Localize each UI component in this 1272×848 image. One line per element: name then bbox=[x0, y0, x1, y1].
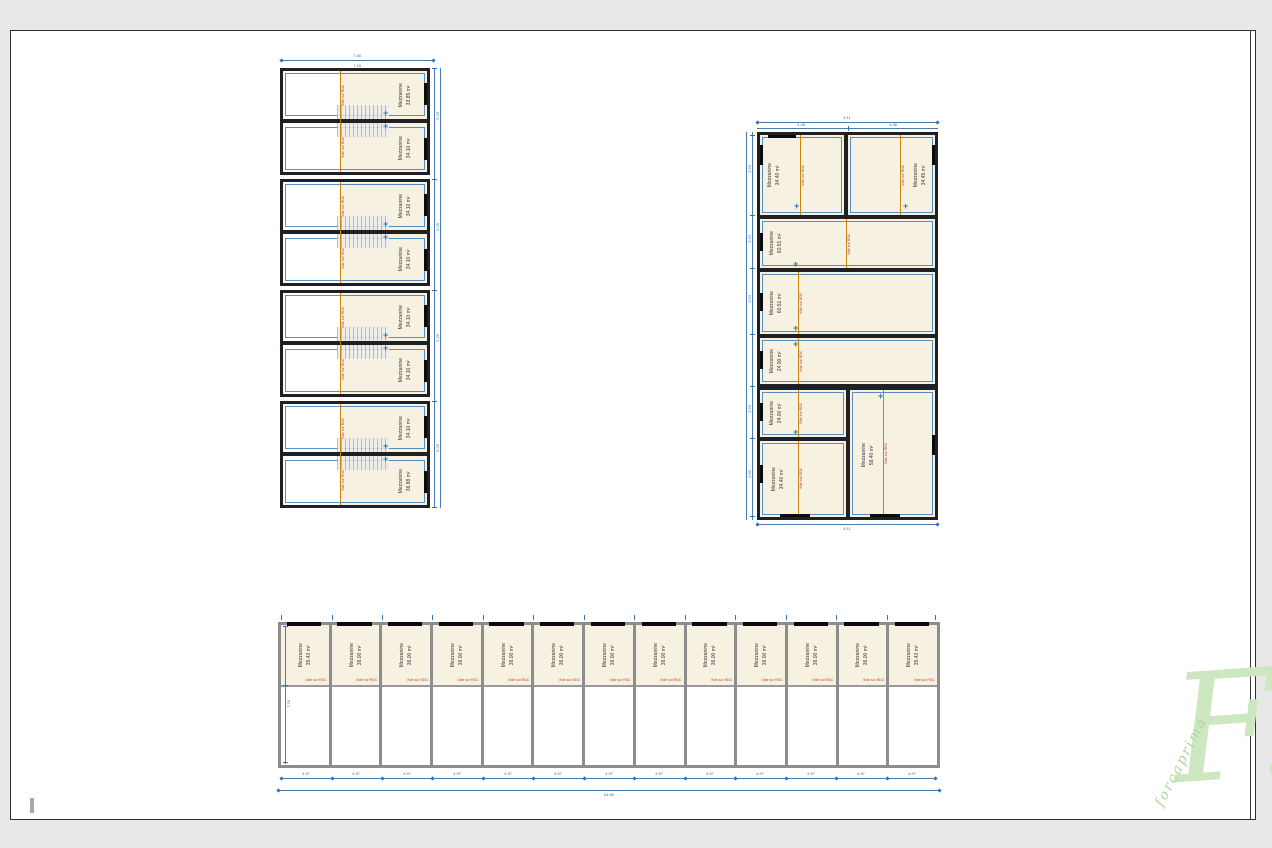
door-bar bbox=[489, 622, 523, 626]
level-marker-icon: + bbox=[793, 325, 798, 331]
dim-tick bbox=[735, 615, 736, 620]
dim-tick bbox=[432, 401, 437, 402]
dim-tick bbox=[685, 615, 686, 620]
room-area: 34.10 m² bbox=[405, 416, 413, 440]
room-label: Mezzanine34.10 m² bbox=[389, 406, 421, 450]
room-label: Mezzanine36.00 m² bbox=[788, 625, 836, 685]
dimension-label: 4.97 bbox=[857, 771, 865, 776]
window-bar bbox=[760, 145, 763, 165]
window-bar bbox=[424, 416, 427, 438]
room-area: 24.00 m² bbox=[776, 349, 784, 373]
dimension-label: 4.97 bbox=[453, 771, 461, 776]
dim-tick bbox=[848, 126, 849, 131]
dimension-line bbox=[281, 60, 434, 61]
void-annotation: Vide sur RDC bbox=[609, 678, 630, 682]
room-name: Mezzanine bbox=[768, 291, 776, 315]
window-bar bbox=[760, 403, 763, 421]
room-label: Mezzanine36.00 m² bbox=[382, 625, 430, 685]
room-label: Mezzanine35.43 m² bbox=[281, 625, 329, 685]
room-area: 36.00 m² bbox=[710, 643, 718, 667]
dim-tick bbox=[750, 268, 755, 269]
dimension-label: 5.29 bbox=[435, 223, 440, 231]
void-annotation: Vide sur RDC bbox=[799, 280, 803, 326]
dim-tick bbox=[836, 615, 837, 620]
room-name: Mezzanine bbox=[804, 643, 812, 667]
dim-tick bbox=[432, 615, 433, 620]
door-bar bbox=[780, 514, 810, 517]
dim-tick bbox=[283, 762, 288, 763]
storage-unit: Mezzanine36.00 m²Vide sur RDC bbox=[382, 625, 433, 765]
wall bbox=[283, 230, 427, 234]
room-name: Mezzanine bbox=[905, 643, 913, 667]
void-annotation: Vide sur RDC bbox=[341, 129, 345, 165]
void-annotation: Vide sur RDC bbox=[711, 678, 732, 682]
room-inner-frame bbox=[762, 340, 933, 382]
building-shell: Vide sur RDC Mezzanine34.40 m² + Vide su… bbox=[757, 132, 938, 520]
window-bar bbox=[760, 293, 763, 311]
room-area: 36.00 m² bbox=[406, 643, 414, 667]
room-name: Mezzanine bbox=[297, 643, 305, 667]
room-label: Mezzanine34.40 m² bbox=[764, 143, 784, 207]
room-label: Mezzanine36.00 m² bbox=[585, 625, 633, 685]
void-annotation: Vide sur RDC bbox=[799, 344, 803, 378]
room-area: 36.88 m² bbox=[405, 469, 413, 493]
dimension-label: 7.58 bbox=[353, 53, 361, 58]
room-name: Mezzanine bbox=[397, 194, 405, 218]
room-inner-frame bbox=[762, 274, 933, 332]
wall bbox=[283, 341, 427, 345]
room-area: 36.00 m² bbox=[660, 643, 668, 667]
dimension-label: 4.97 bbox=[403, 771, 411, 776]
storage-unit: Mezzanine36.00 m²Vide sur RDC bbox=[737, 625, 788, 765]
mezzanine-area: Mezzanine36.00 m²Vide sur RDC bbox=[534, 625, 582, 687]
dim-tick bbox=[750, 215, 755, 216]
level-marker-icon: + bbox=[793, 429, 798, 435]
room-area: 36.00 m² bbox=[558, 643, 566, 667]
void-annotation: Vide sur RDC bbox=[863, 678, 884, 682]
room-name: Mezzanine bbox=[770, 467, 778, 491]
room-name: Mezzanine bbox=[860, 443, 868, 467]
dim-tick bbox=[533, 615, 534, 620]
window-bar bbox=[424, 249, 427, 271]
dimension-label: 4.48 bbox=[797, 122, 805, 127]
void-annotation: Vide sur RDC bbox=[901, 147, 905, 203]
level-marker-icon: + bbox=[793, 261, 798, 267]
door-bar bbox=[768, 135, 796, 138]
mezzanine-area: Mezzanine36.00 m²Vide sur RDC bbox=[687, 625, 735, 687]
drawing-canvas: 7.58 7.18 Vide sur RDC Vide sur RDC Mezz… bbox=[0, 0, 1272, 848]
door-bar bbox=[337, 622, 371, 626]
dimension-label: 4.97 bbox=[605, 771, 613, 776]
room-area: 36.00 m² bbox=[609, 643, 617, 667]
window-bar bbox=[424, 83, 427, 105]
void-annotation: Vide sur RDC bbox=[341, 351, 345, 387]
void-annotation: Vide sur RDC bbox=[799, 396, 803, 431]
dimension-label: 3.93 bbox=[747, 470, 752, 478]
room-label: Mezzanine33.85 m² bbox=[389, 73, 421, 117]
dim-tick bbox=[432, 290, 437, 291]
dimension-label: 3.93 bbox=[747, 405, 752, 413]
room-area: 34.45 m² bbox=[920, 163, 928, 187]
storage-unit: Mezzanine36.00 m²Vide sur RDC bbox=[788, 625, 839, 765]
window-bar bbox=[424, 194, 427, 216]
window-bar bbox=[424, 471, 427, 493]
dimension-line bbox=[434, 68, 435, 508]
window-bar bbox=[760, 233, 763, 251]
level-marker-icon: + bbox=[383, 345, 388, 351]
storage-unit: Mezzanine36.00 m²Vide sur RDC bbox=[534, 625, 585, 765]
wall bbox=[283, 452, 427, 456]
dimension-label: 3.93 bbox=[747, 295, 752, 303]
room-label: Mezzanine60.51 m² bbox=[766, 277, 786, 329]
dim-tick bbox=[283, 626, 288, 627]
room-area: 36.00 m² bbox=[457, 643, 465, 667]
door-bar bbox=[844, 622, 878, 626]
room-label: Mezzanine34.10 m² bbox=[389, 348, 421, 392]
room-name: Mezzanine bbox=[397, 305, 405, 329]
window-bar bbox=[760, 351, 763, 369]
mezzanine-area: Mezzanine36.00 m²Vide sur RDC bbox=[585, 625, 633, 687]
room-name: Mezzanine bbox=[397, 136, 405, 160]
room-name: Mezzanine bbox=[500, 643, 508, 667]
level-marker-icon: + bbox=[794, 203, 799, 209]
room-area: 33.85 m² bbox=[405, 83, 413, 107]
mezzanine-area: Mezzanine36.00 m²Vide sur RDC bbox=[737, 625, 785, 687]
watermark-letter: F. bbox=[1167, 648, 1272, 807]
dimension-label: 4.97 bbox=[756, 771, 764, 776]
level-marker-icon: + bbox=[383, 332, 388, 338]
level-marker-icon: + bbox=[383, 110, 388, 116]
floor-plan-bottom: Mezzanine35.43 m²Vide sur RDC Mezzanine3… bbox=[278, 622, 940, 768]
room-label: Mezzanine34.10 m² bbox=[389, 184, 421, 228]
void-annotation: Vide sur RDC bbox=[801, 147, 805, 203]
storage-unit: Mezzanine36.00 m²Vide sur RDC bbox=[687, 625, 738, 765]
room-area: 24.00 m² bbox=[776, 401, 784, 425]
dimension-label: 5.29 bbox=[435, 334, 440, 342]
void-annotation: Vide sur RDC bbox=[457, 678, 478, 682]
room-name: Mezzanine bbox=[753, 643, 761, 667]
room-area: 35.43 m² bbox=[913, 643, 921, 667]
building-module: Vide sur RDC Vide sur RDC Mezzanine34.10… bbox=[280, 401, 430, 508]
dimension-label: 3.93 bbox=[747, 165, 752, 173]
dim-tick bbox=[432, 68, 437, 69]
void-annotation: Vide sur RDC bbox=[812, 678, 833, 682]
void-annotation: Vide sur RDC bbox=[799, 449, 803, 507]
window-bar bbox=[932, 435, 935, 455]
room-label: Mezzanine24.00 m² bbox=[766, 341, 786, 381]
room-label: Mezzanine36.00 m² bbox=[433, 625, 481, 685]
room-name: Mezzanine bbox=[348, 643, 356, 667]
dimension-label: 9.11 bbox=[843, 526, 851, 531]
room-area: 35.43 m² bbox=[305, 643, 313, 667]
room-area: 36.00 m² bbox=[862, 643, 870, 667]
dimension-line bbox=[757, 122, 938, 123]
void-annotation: Vide sur RDC bbox=[559, 678, 580, 682]
room-name: Mezzanine bbox=[768, 349, 776, 373]
room-label: Mezzanine36.00 m² bbox=[839, 625, 887, 685]
dim-tick bbox=[432, 507, 437, 508]
room-label: Mezzanine35.43 m² bbox=[889, 625, 937, 685]
room-area: 34.10 m² bbox=[405, 136, 413, 160]
void-annotation: Vide sur RDC bbox=[305, 678, 326, 682]
room-label: Mezzanine34.10 m² bbox=[389, 237, 421, 281]
level-marker-icon: + bbox=[383, 221, 388, 227]
dimension-label: 5.29 bbox=[435, 444, 440, 452]
room-label: Mezzanine34.10 m² bbox=[389, 295, 421, 339]
window-bar bbox=[760, 465, 763, 483]
level-marker-icon: + bbox=[903, 203, 908, 209]
wall bbox=[283, 119, 427, 123]
door-bar bbox=[692, 622, 726, 626]
window-bar bbox=[424, 138, 427, 160]
dimension-label: 4.48 bbox=[889, 122, 897, 127]
dimension-label: 4.97 bbox=[706, 771, 714, 776]
room-name: Mezzanine bbox=[397, 247, 405, 271]
level-marker-icon: + bbox=[383, 443, 388, 449]
room-label: Mezzanine36.00 m² bbox=[484, 625, 532, 685]
dimension-label: 4.97 bbox=[655, 771, 663, 776]
door-bar bbox=[895, 622, 929, 626]
room-label: Mezzanine34.40 m² bbox=[768, 447, 788, 511]
door-bar bbox=[870, 514, 900, 517]
storage-unit: Mezzanine36.00 m²Vide sur RDC bbox=[332, 625, 383, 765]
dimension-line bbox=[278, 790, 940, 791]
window-bar bbox=[424, 305, 427, 327]
dim-tick bbox=[432, 179, 437, 180]
door-bar bbox=[642, 622, 676, 626]
room-area: 34.10 m² bbox=[405, 305, 413, 329]
dim-tick bbox=[584, 615, 585, 620]
room-label: Mezzanine60.51 m² bbox=[766, 223, 786, 264]
dimension-line bbox=[440, 68, 441, 508]
room-area: 34.40 m² bbox=[774, 163, 782, 187]
void-annotation: Vide sur RDC bbox=[508, 678, 529, 682]
door-bar bbox=[743, 622, 777, 626]
dim-tick bbox=[281, 615, 282, 620]
door-bar bbox=[388, 622, 422, 626]
dim-tick bbox=[382, 615, 383, 620]
void-annotation: Vide sur RDC bbox=[762, 678, 783, 682]
building-module: Vide sur RDC Vide sur RDC Mezzanine34.10… bbox=[280, 179, 430, 286]
room-label: Mezzanine36.00 m² bbox=[332, 625, 380, 685]
room-label: Mezzanine36.00 m² bbox=[737, 625, 785, 685]
void-annotation: Vide sur RDC bbox=[341, 410, 345, 446]
mezzanine-area: Mezzanine36.00 m²Vide sur RDC bbox=[433, 625, 481, 687]
door-bar bbox=[591, 622, 625, 626]
void-annotation: Vide sur RDC bbox=[884, 403, 888, 503]
dimension-label: 5.29 bbox=[435, 112, 440, 120]
dim-tick bbox=[786, 615, 787, 620]
dimension-label: 4.97 bbox=[807, 771, 815, 776]
room-area: 36.00 m² bbox=[508, 643, 516, 667]
dimension-label: 7.20 bbox=[286, 700, 291, 708]
void-annotation: Vide sur RDC bbox=[660, 678, 681, 682]
void-annotation: Vide sur RDC bbox=[341, 77, 345, 113]
dimension-label: 4.97 bbox=[302, 771, 310, 776]
door-bar bbox=[287, 622, 321, 626]
room-area: 60.51 m² bbox=[776, 231, 784, 255]
room-name: Mezzanine bbox=[449, 643, 457, 667]
mezzanine-area: Mezzanine36.00 m²Vide sur RDC bbox=[788, 625, 836, 687]
level-marker-icon: + bbox=[383, 123, 388, 129]
room-name: Mezzanine bbox=[768, 231, 776, 255]
dimension-label: 4.97 bbox=[352, 771, 360, 776]
storage-unit: Mezzanine36.00 m²Vide sur RDC bbox=[433, 625, 484, 765]
void-annotation: Vide sur RDC bbox=[407, 678, 428, 682]
level-marker-icon: + bbox=[383, 234, 388, 240]
room-name: Mezzanine bbox=[768, 401, 776, 425]
dimension-label: 4.97 bbox=[908, 771, 916, 776]
room-area: 36.00 m² bbox=[812, 643, 820, 667]
dim-tick bbox=[634, 615, 635, 620]
room-name: Mezzanine bbox=[766, 163, 774, 187]
dim-tick bbox=[750, 135, 755, 136]
dim-tick bbox=[750, 334, 755, 335]
room-area: 34.10 m² bbox=[405, 194, 413, 218]
void-annotation: Vide sur RDC bbox=[341, 240, 345, 276]
room-name: Mezzanine bbox=[397, 358, 405, 382]
dimension-label: 9.11 bbox=[843, 115, 851, 120]
room-name: Mezzanine bbox=[652, 643, 660, 667]
dimension-line bbox=[752, 132, 753, 520]
dim-tick bbox=[750, 386, 755, 387]
dimension-line bbox=[746, 132, 747, 520]
level-marker-icon: + bbox=[793, 341, 798, 347]
void-annotation: Vide sur RDC bbox=[341, 462, 345, 498]
storage-unit: Mezzanine36.00 m²Vide sur RDC bbox=[484, 625, 535, 765]
mezzanine-area: Mezzanine36.00 m²Vide sur RDC bbox=[636, 625, 684, 687]
door-bar bbox=[540, 622, 574, 626]
void-annotation: Vide sur RDC bbox=[356, 678, 377, 682]
door-bar bbox=[439, 622, 473, 626]
room-area: 34.10 m² bbox=[405, 358, 413, 382]
room-label: Mezzanine36.00 m² bbox=[636, 625, 684, 685]
dimension-line bbox=[757, 524, 938, 525]
dimension-line bbox=[285, 626, 286, 764]
room-label: Mezzanine36.88 m² bbox=[389, 459, 421, 503]
dimension-label: 4.97 bbox=[554, 771, 562, 776]
level-marker-icon: + bbox=[383, 456, 388, 462]
room-name: Mezzanine bbox=[397, 83, 405, 107]
room-name: Mezzanine bbox=[912, 163, 920, 187]
void-annotation: Vide sur RDC bbox=[914, 678, 935, 682]
dimension-label: 4.97 bbox=[504, 771, 512, 776]
dim-tick bbox=[483, 615, 484, 620]
void-annotation: Vide sur RDC bbox=[341, 299, 345, 335]
dim-tick bbox=[332, 615, 333, 620]
room-name: Mezzanine bbox=[397, 416, 405, 440]
dim-tick bbox=[750, 516, 755, 517]
room-label: Mezzanine36.00 m² bbox=[534, 625, 582, 685]
storage-unit: Mezzanine36.00 m²Vide sur RDC bbox=[839, 625, 890, 765]
room-area: 36.00 m² bbox=[356, 643, 364, 667]
mezzanine-area: Mezzanine36.00 m²Vide sur RDC bbox=[484, 625, 532, 687]
room-area: 58.40 m² bbox=[868, 443, 876, 467]
storage-unit: Mezzanine36.00 m²Vide sur RDC bbox=[585, 625, 636, 765]
storage-unit: Mezzanine35.43 m²Vide sur RDC bbox=[281, 625, 332, 765]
window-bar bbox=[932, 145, 935, 165]
mezzanine-area: Mezzanine36.00 m²Vide sur RDC bbox=[382, 625, 430, 687]
room-label: Mezzanine24.00 m² bbox=[766, 393, 786, 434]
level-marker-icon: + bbox=[878, 393, 883, 399]
room-name: Mezzanine bbox=[397, 469, 405, 493]
mezzanine-area: Mezzanine36.00 m²Vide sur RDC bbox=[839, 625, 887, 687]
dim-tick bbox=[283, 685, 288, 686]
mezzanine-area: Mezzanine35.43 m²Vide sur RDC bbox=[889, 625, 937, 687]
building-module: Vide sur RDC Vide sur RDC Mezzanine33.85… bbox=[280, 68, 430, 175]
mezzanine-area: Mezzanine36.00 m²Vide sur RDC bbox=[332, 625, 380, 687]
building-module: Vide sur RDC Vide sur RDC Mezzanine34.10… bbox=[280, 290, 430, 397]
room-name: Mezzanine bbox=[601, 643, 609, 667]
room-label: Mezzanine34.10 m² bbox=[389, 126, 421, 170]
room-area: 36.00 m² bbox=[761, 643, 769, 667]
dim-tick bbox=[935, 615, 936, 620]
void-annotation: Vide sur RDC bbox=[847, 225, 851, 263]
room-area: 60.51 m² bbox=[776, 291, 784, 315]
room-label: Mezzanine36.00 m² bbox=[687, 625, 735, 685]
void-annotation: Vide sur RDC bbox=[341, 188, 345, 224]
room-label: Mezzanine58.40 m² bbox=[858, 410, 878, 500]
window-bar bbox=[424, 360, 427, 382]
door-bar bbox=[794, 622, 828, 626]
storage-unit: Mezzanine35.43 m²Vide sur RDC bbox=[889, 625, 937, 765]
dim-tick bbox=[887, 615, 888, 620]
dimension-label: 64.66 bbox=[604, 792, 614, 797]
print-artifact bbox=[30, 798, 34, 813]
dimension-label: 3.93 bbox=[747, 235, 752, 243]
storage-unit: Mezzanine36.00 m²Vide sur RDC bbox=[636, 625, 687, 765]
room-area: 34.40 m² bbox=[778, 467, 786, 491]
dim-tick bbox=[750, 438, 755, 439]
mezzanine-area: Mezzanine35.43 m²Vide sur RDC bbox=[281, 625, 329, 687]
room-label: Mezzanine34.45 m² bbox=[910, 143, 930, 207]
room-area: 34.10 m² bbox=[405, 247, 413, 271]
